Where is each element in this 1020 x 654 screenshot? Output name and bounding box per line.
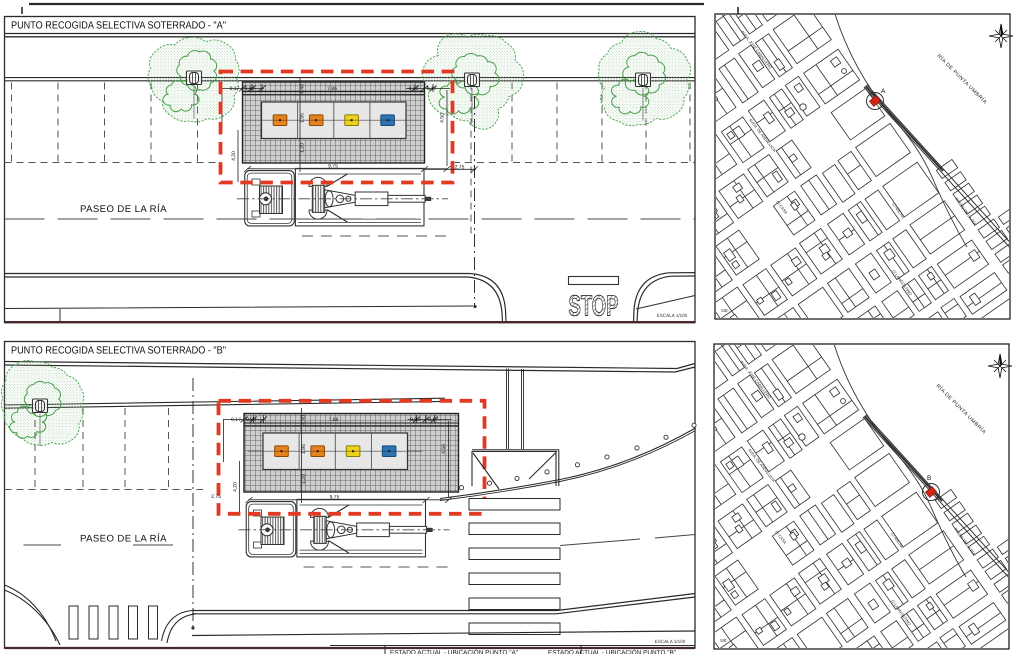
svg-text:7,86: 7,86 — [327, 86, 337, 92]
svg-text:0,90: 0,90 — [246, 417, 256, 423]
svg-text:S/E: S/E — [721, 308, 728, 313]
svg-text:0,17: 0,17 — [428, 417, 438, 423]
svg-text:0,17: 0,17 — [427, 86, 437, 92]
svg-text:0,90: 0,90 — [410, 417, 420, 423]
svg-text:4,50: 4,50 — [440, 113, 446, 123]
svg-text:PASEO DE LA RÍA: PASEO DE LA RÍA — [80, 533, 167, 545]
svg-text:0,17: 0,17 — [231, 417, 241, 423]
svg-text:2,75: 2,75 — [211, 494, 221, 500]
svg-text:ESTADO ACTUAL - UBICACIÓN PUNT: ESTADO ACTUAL - UBICACIÓN PUNTO "B" — [548, 649, 676, 654]
svg-text:S/E: S/E — [720, 638, 727, 643]
svg-text:7,86: 7,86 — [329, 417, 339, 423]
svg-text:1,20: 1,20 — [300, 143, 306, 153]
svg-text:2,75: 2,75 — [455, 164, 465, 170]
svg-text:B: B — [927, 475, 931, 482]
svg-text:0,90: 0,90 — [409, 86, 419, 92]
svg-text:0,17: 0,17 — [230, 86, 240, 92]
svg-text:STOP: STOP — [569, 291, 619, 323]
svg-text:ESCALA 1/100: ESCALA 1/100 — [657, 313, 688, 318]
svg-text:1,95: 1,95 — [300, 113, 306, 123]
svg-text:ESCALA 1/100: ESCALA 1/100 — [655, 639, 686, 644]
svg-text:0,90: 0,90 — [245, 86, 255, 92]
svg-text:1,20: 1,20 — [301, 474, 307, 484]
svg-text:A: A — [881, 88, 886, 95]
svg-text:PUNTO RECOGIDA SELECTIVA SOTER: PUNTO RECOGIDA SELECTIVA SOTERRADO - "A" — [11, 21, 226, 32]
svg-text:1,95: 1,95 — [301, 444, 307, 454]
svg-text:ESTADO ACTUAL - UBICACIÓN PUNT: ESTADO ACTUAL - UBICACIÓN PUNTO "A" — [390, 649, 518, 654]
svg-text:PUNTO RECOGIDA SELECTIVA SOTER: PUNTO RECOGIDA SELECTIVA SOTERRADO - "B" — [11, 346, 226, 357]
svg-text:4,20: 4,20 — [232, 482, 238, 492]
svg-text:4,50: 4,50 — [441, 444, 447, 454]
svg-text:4,20: 4,20 — [231, 151, 237, 161]
svg-text:PASEO DE LA RÍA: PASEO DE LA RÍA — [80, 203, 167, 215]
svg-text:4,40: 4,40 — [300, 84, 306, 94]
svg-text:4,40: 4,40 — [301, 415, 307, 425]
